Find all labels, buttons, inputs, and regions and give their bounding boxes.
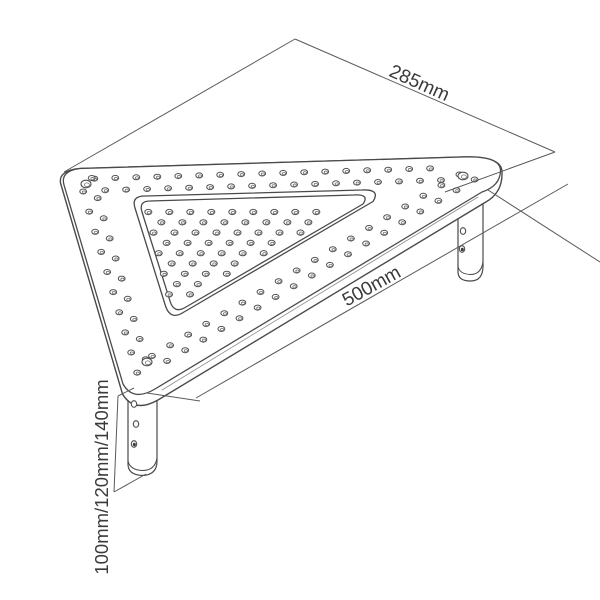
ext-500-right — [488, 190, 600, 262]
leg-dim-tick-bottom — [114, 474, 146, 492]
screenshot-root: 285mm 500mm 100mm/120mm/140mm — [0, 0, 600, 600]
leg-dim-vertical — [114, 396, 118, 492]
dim-285 — [295, 39, 555, 152]
ext-285-left — [64, 39, 295, 172]
stand-dimension-drawing — [0, 0, 600, 600]
stand-body — [60, 157, 502, 476]
